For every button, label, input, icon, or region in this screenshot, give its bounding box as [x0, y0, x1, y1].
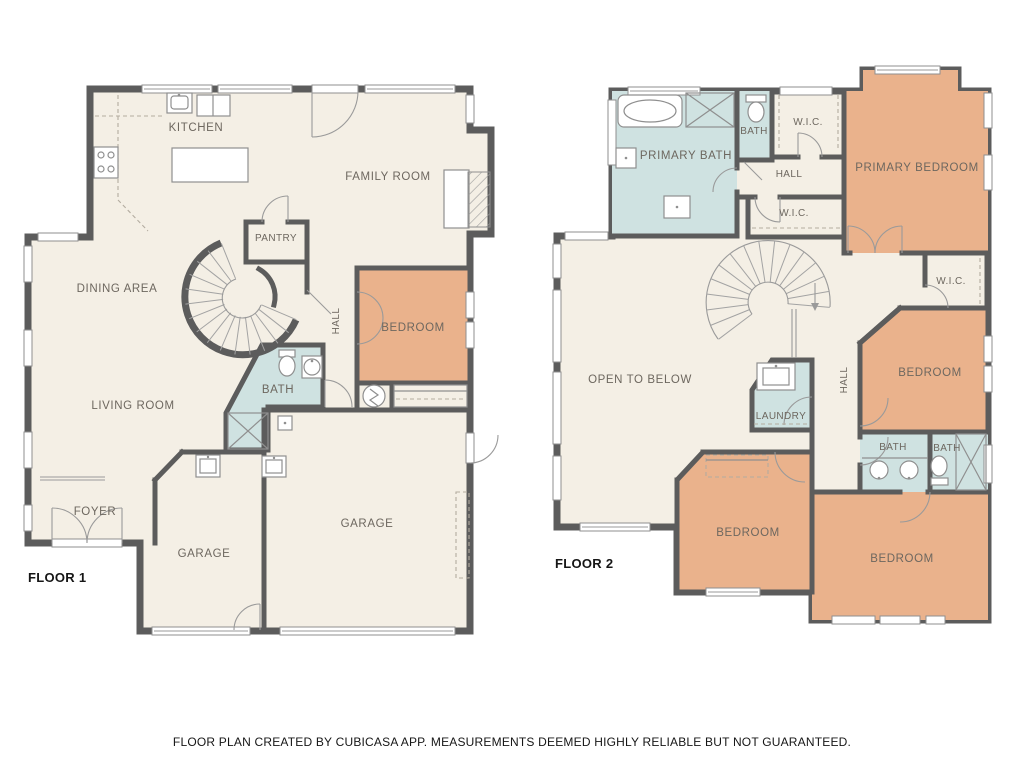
room-label-garage-left: GARAGE — [178, 548, 231, 560]
room-label-foyer: FOYER — [74, 506, 117, 518]
caption: FLOOR PLAN CREATED BY CUBICASA APP. MEAS… — [173, 735, 851, 749]
room-label-wic-mid: W.I.C. — [779, 208, 809, 219]
room-label-bedroom-bottom-left: BEDROOM — [716, 527, 780, 539]
room-label-hall-top: HALL — [776, 169, 803, 180]
room-label-dining-area: DINING AREA — [77, 283, 158, 295]
kitchen-island — [172, 148, 248, 182]
small-sink-icon-f1 — [278, 416, 292, 430]
room-label-wic-right: W.I.C. — [936, 276, 966, 287]
room-label-family-room: FAMILY ROOM — [345, 171, 430, 183]
room-label-laundry: LAUNDRY — [756, 411, 806, 422]
tub-icon — [618, 95, 682, 127]
vanity-icon-primary-2 — [664, 196, 690, 218]
room-label-bedroom-bottom-right: BEDROOM — [870, 553, 934, 565]
floor2-bath-left-area — [860, 432, 930, 492]
room-label-bedroom-right: BEDROOM — [898, 367, 962, 379]
room-label-open-to-below: OPEN TO BELOW — [588, 374, 692, 386]
water-heater-icon — [363, 385, 385, 407]
room-label-bath-left: BATH — [879, 442, 907, 453]
room-label-garage-right: GARAGE — [341, 518, 394, 530]
toilet-icon-f1 — [279, 350, 295, 376]
kitchen-sink-icon — [167, 93, 192, 113]
garage-sink-icon-right — [262, 456, 286, 477]
room-label-hall-f1: HALL — [331, 308, 342, 335]
room-label-pantry: PANTRY — [255, 233, 297, 244]
garage-sink-icon-left — [196, 455, 220, 477]
floor2-title: FLOOR 2 — [555, 556, 613, 571]
toilet-icon-bath-top — [746, 95, 766, 122]
room-label-bedroom-f1: BEDROOM — [381, 322, 445, 334]
room-label-kitchen: KITCHEN — [169, 122, 224, 134]
floor-plan-drawing: KITCHEN FAMILY ROOM PANTRY DINING AREA B… — [0, 0, 1024, 768]
floor2-bedroom-bottom-left-area — [677, 452, 812, 592]
fireplace-icon — [444, 170, 490, 228]
room-label-bath-top: BATH — [740, 126, 768, 137]
room-label-bath-right: BATH — [933, 443, 961, 454]
room-label-primary-bedroom: PRIMARY BEDROOM — [855, 162, 979, 174]
bath-sink-icon-f1 — [302, 356, 322, 378]
floor1-title: FLOOR 1 — [28, 570, 86, 585]
room-label-bath-f1: BATH — [262, 384, 294, 396]
floor1-plan: KITCHEN FAMILY ROOM PANTRY DINING AREA B… — [24, 85, 498, 635]
room-label-living-room: LIVING ROOM — [91, 400, 174, 412]
room-label-wic-top: W.I.C. — [793, 117, 823, 128]
vanity-icon-primary-1 — [616, 148, 636, 168]
room-label-primary-bath: PRIMARY BATH — [640, 150, 732, 162]
room-label-hall-f2: HALL — [839, 367, 850, 394]
fridge-icon — [197, 95, 230, 116]
floor2-plan: PRIMARY BATH BATH W.I.C. HALL PRIMARY BE… — [553, 66, 992, 624]
stove-icon — [94, 147, 118, 178]
toilet-icon-bath-right — [931, 456, 948, 485]
floor-plan-page: KITCHEN FAMILY ROOM PANTRY DINING AREA B… — [0, 0, 1024, 768]
